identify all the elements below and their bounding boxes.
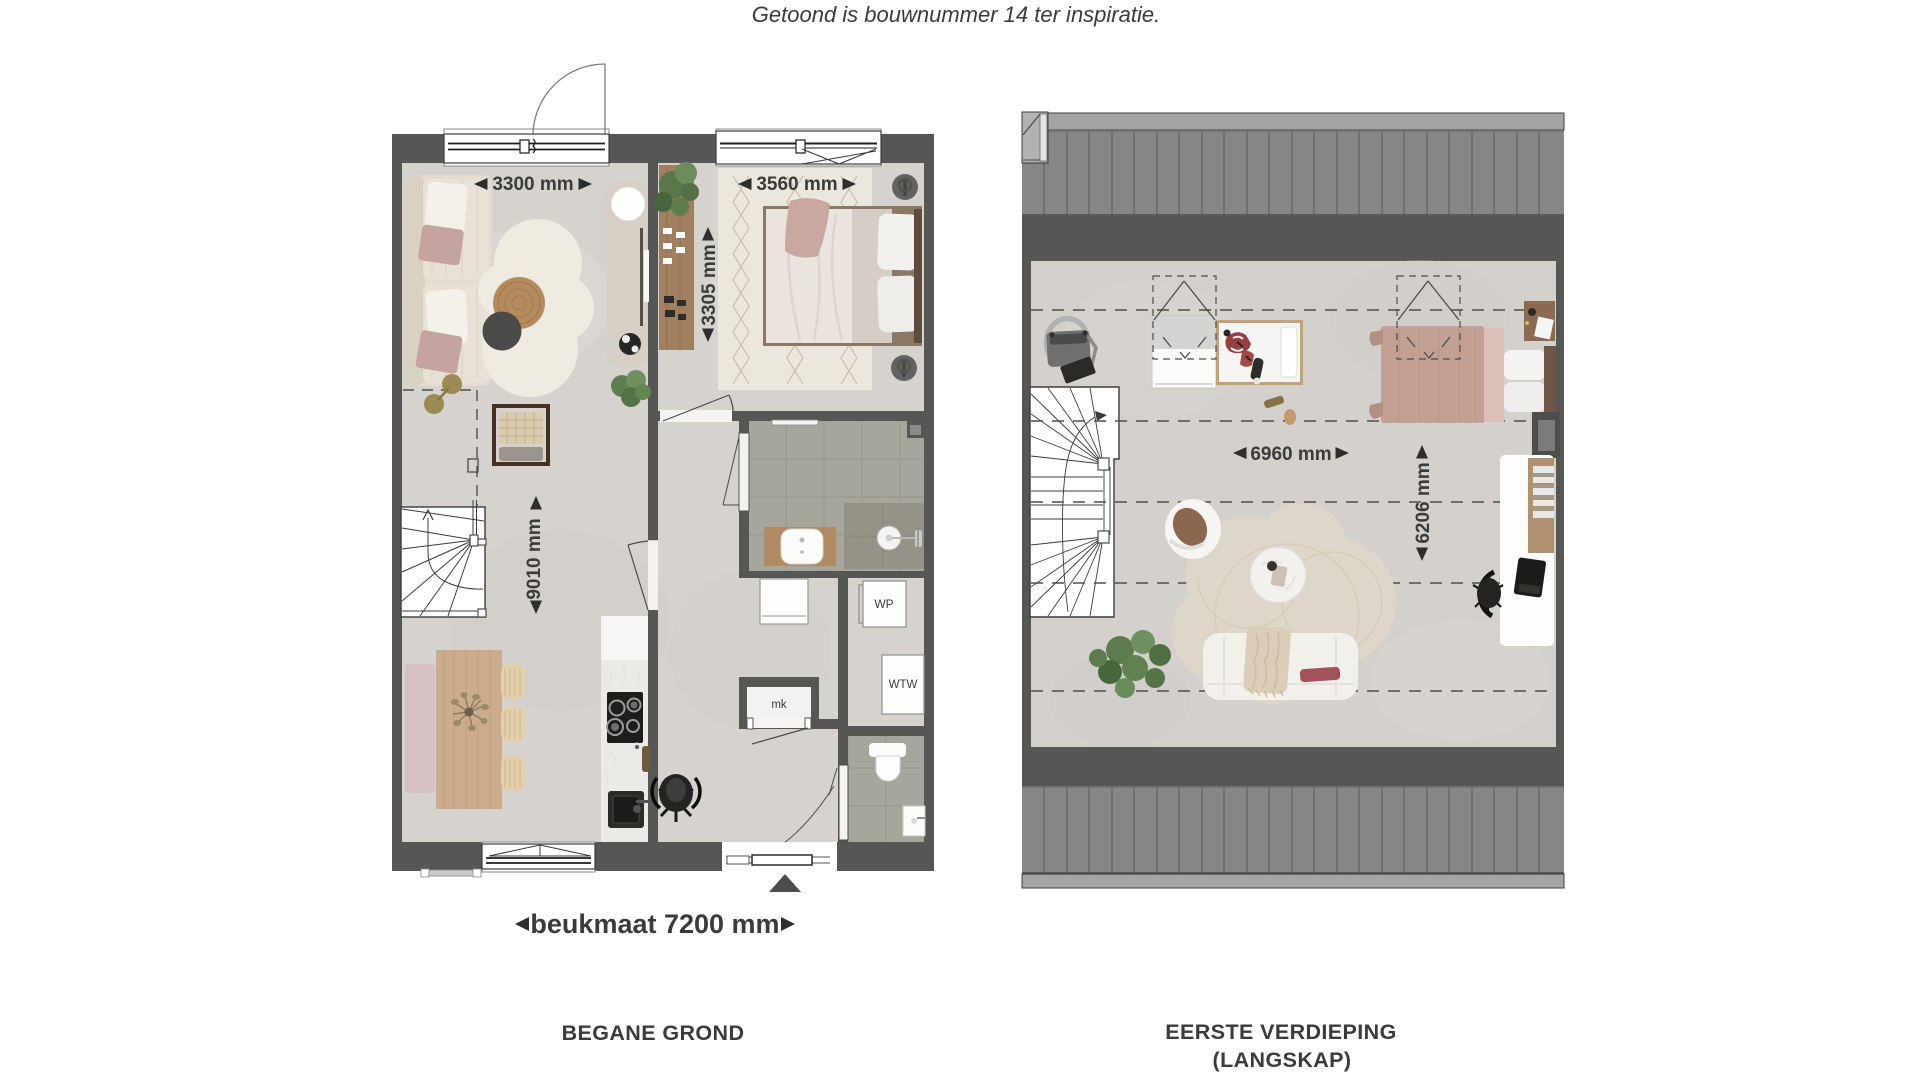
svg-text:(LANGSKAP): (LANGSKAP)	[1213, 1048, 1352, 1072]
svg-text:WP: WP	[874, 597, 893, 611]
svg-text:6960 mm: 6960 mm	[1250, 444, 1331, 465]
svg-text:3300 mm: 3300 mm	[492, 174, 573, 195]
svg-text:3305 mm: 3305 mm	[699, 244, 720, 325]
svg-text:WTW: WTW	[889, 679, 918, 691]
svg-text:3560 mm: 3560 mm	[756, 174, 837, 195]
svg-text:BEGANE GROND: BEGANE GROND	[562, 1021, 745, 1045]
svg-text:EERSTE VERDIEPING: EERSTE VERDIEPING	[1165, 1020, 1396, 1044]
svg-text:6206 mm: 6206 mm	[1413, 462, 1434, 543]
svg-text:beukmaat 7200 mm: beukmaat 7200 mm	[530, 909, 779, 939]
svg-text:mk: mk	[771, 699, 787, 711]
svg-text:9010 mm: 9010 mm	[524, 518, 545, 599]
svg-text:Getoond is bouwnummer 14 ter i: Getoond is bouwnummer 14 ter inspiratie.	[752, 2, 1160, 27]
